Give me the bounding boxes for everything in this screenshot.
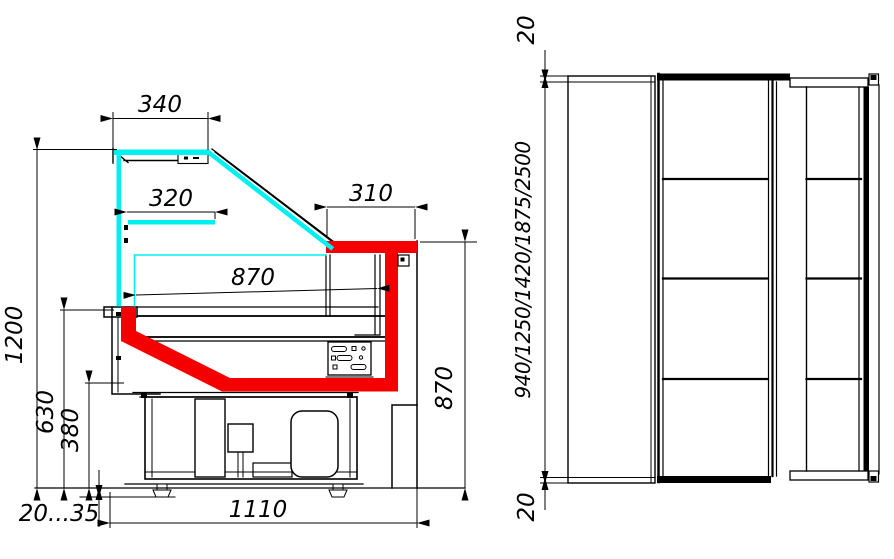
plan-view: 20 940/1250/1420/1875/2500 20 [511,15,879,521]
compressor [291,411,338,477]
dim-380-label: 380 [58,408,84,452]
air-duct [195,399,225,477]
plan-canopy [568,76,655,483]
machine-compartment [125,392,363,484]
front-glass [117,150,122,307]
dim-foot-range-label: 20...35 [19,501,99,527]
dim-870-height-label: 870 [432,366,458,410]
plan-middle-dividers [663,179,768,379]
dim-320-label: 320 [149,186,193,212]
dim-340-label: 340 [138,92,182,118]
cross-section-view: 340 320 310 870 1200 630 380 [2,92,477,528]
dim-630-label: 630 [33,390,59,434]
plan-dimensions: 20 940/1250/1420/1875/2500 20 [511,15,568,521]
dim-lengths-label: 940/1250/1420/1875/2500 [511,141,535,398]
technical-drawing-canvas: 340 320 310 870 1200 630 380 [0,0,894,559]
sloped-glass [210,153,332,248]
glass-panels [114,150,332,307]
vent-grille [326,342,373,377]
dim-310-label: 310 [349,181,393,207]
dim-overhang-top-label: 20 [514,15,540,44]
dim-1200-label: 1200 [2,306,28,365]
adjustable-feet [153,484,347,497]
dim-1110-label: 1110 [229,497,288,523]
dim-overhang-bottom-label: 20 [514,492,540,521]
top-glass-canopy [114,150,210,156]
section-dimensions: 340 320 310 870 1200 630 380 [2,92,477,528]
dim-870-depth-label: 870 [231,265,275,291]
inner-shelf-glass [128,220,215,225]
plan-right-dividers [807,179,862,379]
drawing-svg: 340 320 310 870 1200 630 380 [0,0,894,559]
plan-structure [568,74,879,484]
